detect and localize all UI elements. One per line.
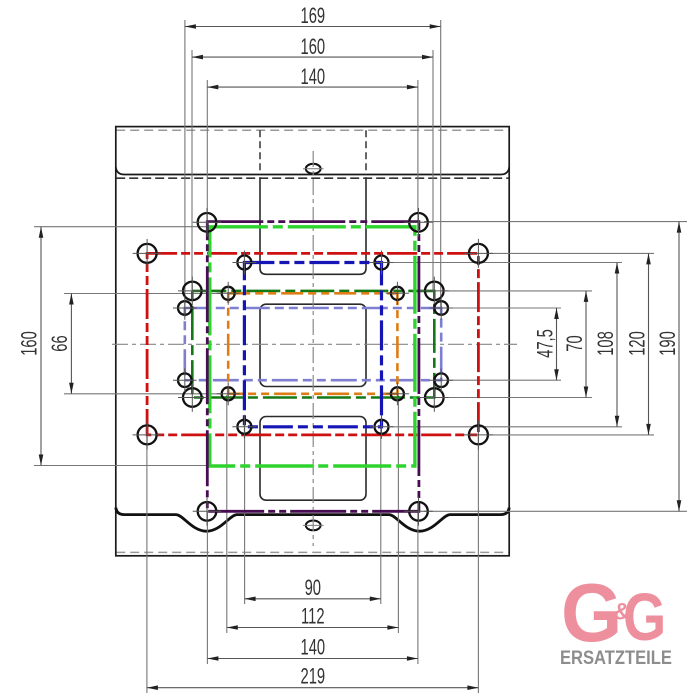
svg-text:219: 219 [301, 663, 326, 688]
svg-text:140: 140 [301, 64, 326, 89]
svg-text:120: 120 [624, 331, 649, 356]
svg-text:190: 190 [655, 331, 680, 356]
svg-text:G: G [623, 580, 666, 655]
svg-text:ERSATZTEILE: ERSATZTEILE [560, 647, 672, 669]
svg-text:108: 108 [593, 331, 618, 356]
svg-text:160: 160 [17, 331, 42, 356]
svg-text:140: 140 [301, 635, 326, 660]
svg-text:90: 90 [305, 575, 321, 600]
svg-text:169: 169 [301, 3, 326, 28]
svg-text:160: 160 [301, 34, 326, 59]
svg-text:47,5: 47,5 [532, 329, 557, 358]
svg-text:112: 112 [301, 604, 324, 629]
svg-text:70: 70 [562, 335, 587, 351]
svg-text:66: 66 [47, 335, 72, 351]
